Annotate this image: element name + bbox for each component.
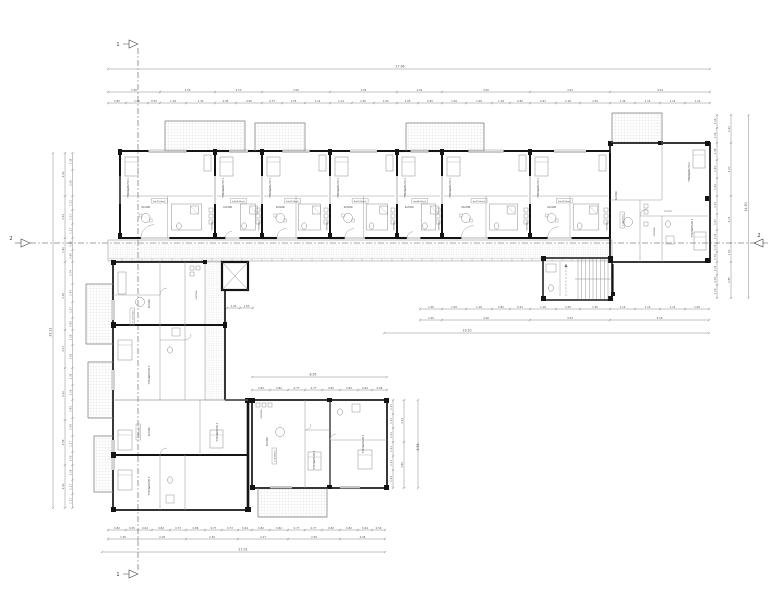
plan-text: 1.03 [713, 233, 717, 239]
plan-text: ΥΠΝΟΔΩΜΑΤΙΟ 1 [127, 178, 130, 198]
plan-text: ΚΟΥΖΙΝΑ [211, 221, 214, 231]
plan-text: 0.73 [227, 526, 233, 530]
plan-text: 3.33 [61, 214, 65, 220]
plan-text: 1.35 [713, 148, 717, 154]
plan-text: 2.13 [236, 88, 242, 92]
plan-text: 0.82 [328, 386, 334, 390]
dim-wing-right-overall: 6.98 [416, 443, 420, 450]
plan-text: ΣΑΛΟΝΙ [141, 206, 150, 209]
plan-text: 0.82 [276, 386, 282, 390]
plan-text: 0.82 [158, 526, 164, 530]
plan-text: 0.82 [258, 386, 264, 390]
floor-plan-svg: ΥΠΝΟΔΩΜΑΤΙΟ 1ΣΑΛΟΝΙΚΟΥΖΙΝΑΕ=75.50m2ΥΠΝΟΔ… [0, 0, 768, 604]
dim-chain-wing-right-minor: 1.111.111.111.111.111.43 [389, 399, 395, 489]
plan-text: 1.43 [713, 166, 717, 172]
dim-chain-left-major: 3.403.331.905.393.014.123.563.40 [61, 152, 67, 509]
plan-text: 3.40 [61, 171, 65, 177]
plan-linework: ΥΠΝΟΔΩΜΑΤΙΟ 1ΣΑΛΟΝΙΚΟΥΖΙΝΑΕ=75.50m2ΥΠΝΟΔ… [30, 48, 756, 572]
plan-text: 1.18 [540, 305, 546, 309]
plan-text: 2.27 [260, 535, 266, 539]
plan-text: ΣΑΛΟΝΙ [461, 206, 470, 209]
plan-text: ΥΠΝΟΔΩΜΑΤΙΟ 1 [691, 218, 694, 237]
plan-text: 1.11 [69, 214, 73, 220]
plan-text: 1.90 [61, 247, 65, 253]
plan-text: 1.11 [389, 432, 393, 438]
stair-core [541, 256, 613, 301]
plan-text: 1.03 [69, 455, 73, 461]
plan-text: ΚΟΥΖΙΝΑ [653, 227, 656, 237]
plan-text: 2.04 [360, 535, 366, 539]
dim-chain-top-minor: 0.821.000.551.181.320.950.950.731.051.14… [107, 99, 711, 105]
plan-text: 2.36 [131, 88, 137, 92]
plan-text: 0.82 [498, 305, 504, 309]
plan-text: ΚΟΥΖΙΝΑ [438, 221, 441, 231]
plan-text: 3.40 [61, 483, 65, 489]
plan-text: ΥΠΝΟΔΩΜΑΤΙΟ 1 [337, 178, 340, 198]
plan-text: 1.43 [389, 476, 393, 482]
plan-text: 3.01 [61, 346, 65, 352]
plan-text: 0.95 [69, 241, 73, 247]
plan-text: ΣΑΛΟΝΙ [148, 299, 151, 308]
plan-text: 1.14 [315, 99, 321, 103]
plan-text: 1.03 [231, 304, 237, 308]
plan-text: 3.63 [567, 88, 573, 92]
plan-text: 1.36 [592, 305, 598, 309]
plan-text: ΚΟΥΖΙΝΑ [393, 221, 396, 231]
plan-text: 1.19 [69, 389, 73, 395]
dim-chain-bottom-major: 1.362.182.362.272.362.04 [107, 535, 386, 541]
plan-text: ΚΟΥΖΙΝΑ [606, 221, 609, 231]
plan-text: 1.00 [383, 99, 389, 103]
plan-text: 1.14 [620, 305, 626, 309]
plan-text: Ε=76.50m2 [354, 201, 367, 203]
plan-text: 1.14 [695, 99, 701, 103]
section1-top-flag-icon [123, 40, 138, 48]
dim-chain-mid-minor: 1.001.091.180.820.911.181.091.361.141.14… [419, 305, 710, 311]
plan-text: ΥΠΝΟΔΩΜΑΤΙΟ 1 [313, 450, 316, 469]
dim-right-overall: 14.50 [744, 202, 748, 211]
plan-text: 1.18 [565, 99, 571, 103]
plan-text: 1.00 [134, 99, 140, 103]
plan-text: 1.03 [713, 288, 717, 294]
plan-text: 1.00 [428, 316, 434, 320]
plan-text: 1.19 [69, 469, 73, 475]
plan-text: 1.43 [713, 202, 717, 208]
plan-text: 1.14 [670, 99, 676, 103]
plan-text: 1.09 [592, 99, 598, 103]
plan-text: Ε=76.50m2 [558, 201, 571, 203]
plan-text: 1.18 [498, 99, 504, 103]
plan-text: 4.12 [61, 391, 65, 397]
plan-text: 3.72 [727, 216, 731, 222]
plan-text: 0.55 [151, 99, 157, 103]
section2-left-label: 2 [9, 236, 12, 242]
plan-text: 4.00 [483, 316, 489, 320]
plan-text: 2.22 [727, 126, 731, 132]
elevator-shaft [222, 262, 248, 290]
plan-text: ΥΠΝΟΔΩΜΑΤΙΟ 2 [362, 434, 365, 453]
plan-text: ΣΑΛΟΝΙ [547, 206, 556, 209]
dim-chain-top-major: 2.362.502.133.093.042.044.003.634.54 [107, 88, 711, 94]
plan-text: ΣΑΛΟΝΙ [223, 206, 232, 209]
plan-text: 0.64 [142, 526, 148, 530]
plan-text: 2.04 [417, 88, 423, 92]
plan-text: 0.77 [294, 526, 300, 530]
plan-text: 1.00 [360, 99, 366, 103]
plan-text: ΥΠΝΟΔΩΜΑΤΙΟ 1 [449, 178, 452, 198]
top-wing: ΥΠΝΟΔΩΜΑΤΙΟ 1ΣΑΛΟΝΙΚΟΥΖΙΝΑΕ=75.50m2ΥΠΝΟΔ… [118, 149, 610, 239]
plan-text: 0.95 [69, 321, 73, 327]
drawing-page: ΥΠΝΟΔΩΜΑΤΙΟ 1ΣΑΛΟΝΙΚΟΥΖΙΝΑΕ=75.50m2ΥΠΝΟΔ… [0, 0, 768, 604]
plan-text: 1.14 [338, 99, 344, 103]
plan-text: 1.11 [389, 418, 393, 424]
dim-left-overall: 28.11 [49, 327, 53, 336]
plan-text: ΚΟΥΖΙΝΑ [260, 409, 263, 419]
plan-text: ΚΟΥΖΙΝΑ [326, 221, 329, 231]
plan-text: Ε=58.35m2 [414, 201, 427, 203]
plan-text: ΚΟΥΖΙΝΑ [526, 221, 529, 231]
plan-text: 0.86 [193, 526, 199, 530]
plan-text: 1.03 [244, 304, 250, 308]
plan-text: Ε=96.20m2 [138, 425, 140, 438]
section2-right-label: 2 [757, 233, 760, 239]
plan-text: 3.09 [293, 88, 299, 92]
dim-mid-overall: 19.10 [462, 329, 471, 333]
plan-text: Ε=76.50m2 [286, 201, 299, 203]
section1-bottom-label: 1 [116, 572, 119, 578]
plan-text: 1.43 [69, 290, 73, 296]
plan-text: 3.33 [400, 418, 404, 424]
section1-top-label: 1 [116, 42, 119, 48]
dim-chain-right-major: 2.224.203.721.502.85 [727, 114, 733, 299]
plan-text: Ε=75.50m2 [153, 201, 166, 203]
plan-text: 2.06 [69, 180, 73, 186]
plan-text: 1.18 [476, 305, 482, 309]
plan-text: 0.82 [346, 386, 352, 390]
plan-text: 0.95 [427, 99, 433, 103]
plan-text: ΣΑΛΟΝΙ [405, 206, 414, 209]
plan-text: 3.56 [61, 439, 65, 445]
plan-text: ΣΑΛΟΝΙ [148, 427, 151, 436]
plan-text: 1.11 [69, 498, 73, 504]
plan-text: 0.73 [175, 526, 181, 530]
plan-text: 1.82 [69, 353, 73, 359]
plan-text: 1.11 [69, 484, 73, 490]
plan-text: 0.82 [346, 526, 352, 530]
plan-text: 0.77 [294, 386, 300, 390]
plan-text: 2.18 [159, 535, 165, 539]
plan-text: 4.54 [657, 88, 663, 92]
plan-text: 2.50 [185, 88, 191, 92]
plan-text: ΣΑΛΟΝΙ [344, 206, 353, 209]
plan-text: 1.27 [69, 441, 73, 447]
plan-text: 4.50 [657, 316, 663, 320]
plan-text: 0.82 [328, 526, 334, 530]
plan-text: 2.36 [209, 535, 215, 539]
plan-text: Ε=103.05m2 [132, 309, 134, 323]
plan-text: ΥΠΝΟΔΩΜΑΤΙΟ 1 [148, 476, 151, 495]
dim-chain-left-minor: 1.352.061.111.111.110.950.951.741.431.27… [69, 152, 75, 509]
plan-text: 0.82 [114, 526, 120, 530]
plan-text: 1.00 [428, 305, 434, 309]
plan-text: 1.35 [69, 373, 73, 379]
plan-text: 1.43 [69, 424, 73, 430]
dim-top-overall: 27.96 [395, 65, 404, 69]
plan-text: 5.39 [61, 293, 65, 299]
plan-text: 1.09 [694, 305, 700, 309]
section1-bottom-flag-icon [123, 570, 138, 578]
plan-text: 1.36 [620, 99, 626, 103]
plan-text: 1.05 [291, 99, 297, 103]
plan-text: 1.14 [670, 305, 676, 309]
plan-text: 3.65 [400, 462, 404, 468]
plan-text: ΛΟΥΤΡΟ [664, 211, 672, 213]
dim-chain-bottom-minor: 0.820.550.640.820.730.860.770.730.640.82… [107, 526, 386, 532]
plan-text: 1.18 [170, 99, 176, 103]
dim-chain-elevator-minor: 1.031.03 [226, 304, 254, 310]
plan-text: 1.03 [713, 265, 717, 271]
plan-text: 0.95 [246, 99, 252, 103]
plan-text: 1.11 [69, 228, 73, 234]
dim-chain-wing-right-major: 3.333.65 [400, 399, 406, 489]
plan-text: 1.11 [389, 446, 393, 452]
plan-text: 1.27 [69, 307, 73, 313]
plan-text: 1.32 [198, 99, 204, 103]
plan-text: 1.09 [451, 305, 457, 309]
plan-text: ΣΑΛΟΝΙ [276, 206, 285, 209]
plan-text: ΥΠΝΟΔΩΜΑΤΙΟ 1 [404, 178, 407, 198]
plan-text: ΚΟΥΖΙΝΑ [258, 221, 261, 231]
right-apartment: ΥΠΝΟΔΩΜΑΤΙΟ 2ΣΑΛΟΝΙΚΟΥΖΙΝΑΥΠΝΟΔΩΜΑΤΙΟ 1Λ… [608, 141, 710, 296]
plan-text: 0.64 [242, 526, 248, 530]
plan-text: ΣΑΛΟΝΙ [615, 191, 618, 200]
plan-text: 0.95 [69, 253, 73, 259]
plan-text: 0.77 [311, 386, 317, 390]
plan-text: ΚΟΥΖΙΝΑ [195, 290, 198, 300]
dim-chain-wing-top-minor: 0.820.820.770.770.820.820.640.68 [251, 386, 388, 392]
plan-text: 0.95 [223, 99, 229, 103]
plan-text: 0.77 [311, 526, 317, 530]
plan-text: 0.79 [713, 277, 717, 283]
plan-text: 0.77 [211, 526, 217, 530]
plan-text: ΥΠΝΟΔΩΜΑΤΙΟ 1 [148, 365, 151, 384]
plan-text: Ε=80.50m2 [622, 213, 624, 226]
plan-text: 0.73 [269, 99, 275, 103]
plan-text: 3.63 [567, 316, 573, 320]
plan-text: 1.05 [405, 99, 411, 103]
plan-text: 0.82 [517, 99, 523, 103]
dim-bottom-overall: 21.02 [238, 547, 247, 551]
plan-text: 1.36 [120, 535, 126, 539]
plan-text: 1.35 [69, 158, 73, 164]
plan-text: 1.19 [69, 334, 73, 340]
plan-text: ΣΑΛΟΝΙ [266, 437, 269, 446]
section2-left-flag-icon [15, 239, 30, 247]
plan-text: 1.11 [69, 200, 73, 206]
dim-chain-mid-major: 1.004.003.634.50 [419, 316, 710, 322]
plan-text: 1.14 [645, 99, 651, 103]
balconies-hatched [86, 113, 662, 517]
plan-text: 4.20 [727, 166, 731, 172]
plan-text: 1.09 [565, 305, 571, 309]
plan-text: 1.11 [389, 460, 393, 466]
plan-text: 1.19 [713, 132, 717, 138]
plan-text: 1.09 [476, 99, 482, 103]
plan-text: 0.71 [713, 244, 717, 250]
plan-text: 1.14 [645, 305, 651, 309]
plan-text: 4.00 [483, 88, 489, 92]
plan-text: 0.55 [129, 526, 135, 530]
plan-text: 1.27 [713, 219, 717, 225]
plan-text: 3.04 [361, 88, 367, 92]
plan-text: 0.91 [517, 305, 523, 309]
plan-text: 2.85 [727, 277, 731, 283]
section2-right-flag-icon [754, 239, 768, 247]
plan-text: 0.82 [258, 526, 264, 530]
plan-text: 1.50 [727, 249, 731, 255]
plan-text: 0.59 [376, 526, 382, 530]
plan-text: 0.82 [114, 99, 120, 103]
plan-text: Ε=58.35m2 [232, 201, 245, 203]
plan-text: Ε=84.60m2 [274, 449, 276, 462]
plan-text: 1.43 [713, 184, 717, 190]
plan-text: 0.79 [713, 254, 717, 260]
plan-text: 1.09 [451, 99, 457, 103]
dim-wing-top-overall: 8.95 [309, 373, 316, 377]
plan-text: ΥΠΝΟΔΩΜΑΤΙΟ 1 [222, 178, 225, 198]
plan-text: 1.43 [69, 406, 73, 412]
plan-text: 1.74 [69, 270, 73, 276]
plan-text: 2.36 [311, 535, 317, 539]
plan-text: 0.68 [377, 386, 383, 390]
plan-text: 0.64 [362, 526, 368, 530]
plan-text: 0.64 [362, 386, 368, 390]
plan-text: ΥΠΝΟΔΩΜΑΤΙΟ 1 [537, 178, 540, 198]
plan-text: ΥΠΝΟΔΩΜΑΤΙΟ 2 [216, 422, 219, 441]
plan-text: ΥΠΝΟΔΩΜΑΤΙΟ 2 [688, 162, 691, 182]
plan-text: ΥΠΝΟΔΩΜΑΤΙΟ 1 [269, 178, 272, 198]
plan-text: 0.82 [276, 526, 282, 530]
plan-text: 1.03 [713, 118, 717, 124]
plan-text: 1.11 [389, 404, 393, 410]
dim-chain-right-minor: 1.031.191.351.431.431.431.271.030.710.79… [713, 114, 719, 299]
plan-text: Ε=75.50m2 [473, 201, 486, 203]
plan-text: 0.91 [540, 99, 546, 103]
